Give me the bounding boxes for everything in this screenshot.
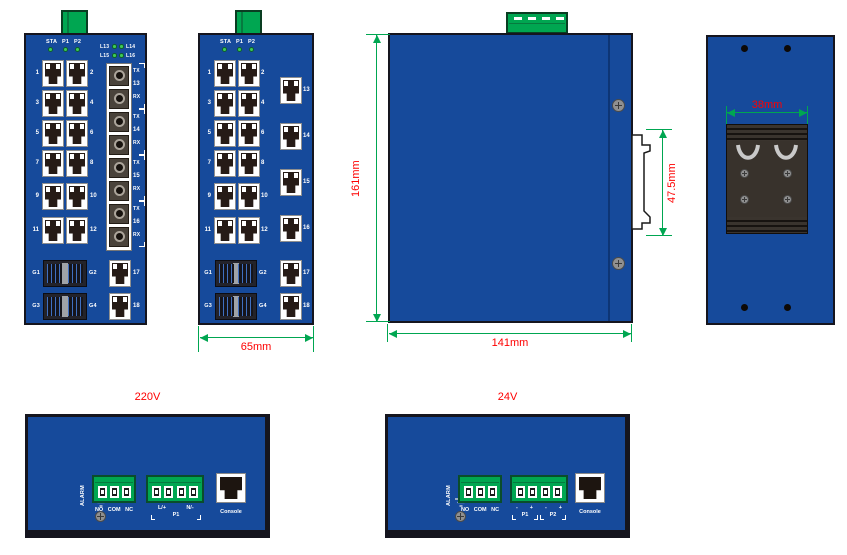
clip-screw: [783, 195, 792, 204]
rj45-jack: [45, 153, 61, 174]
rj45-jack: [241, 153, 257, 174]
rj45-port: [280, 169, 302, 196]
alarm-relay-terminal: [458, 475, 502, 503]
rj45-jack: [283, 263, 299, 284]
rj45-jack: [69, 220, 85, 241]
sfp-label: G3: [201, 303, 212, 309]
fiber-sc-connector: [109, 66, 129, 86]
screw-hole: [741, 304, 748, 311]
extension-line: [387, 324, 388, 342]
terminal-cell: [98, 486, 107, 498]
rj45-jack: [241, 123, 257, 144]
status-led-label: P2: [248, 39, 255, 45]
link-led-label: L13: [100, 44, 111, 50]
rj45-port: [42, 90, 64, 117]
port-number-label: 17: [133, 270, 143, 277]
rj45-port: [42, 217, 64, 244]
fiber-tx-label: TX: [133, 114, 144, 120]
fiber-port-label-group: TX14RX: [133, 109, 145, 155]
clip-screw: [783, 169, 792, 178]
fiber-port-label-group: TX15RX: [133, 155, 145, 201]
rj45-port: [238, 90, 260, 117]
power-group-bracket: P1: [512, 512, 538, 520]
rj45-port: [238, 60, 260, 87]
rj45-port: [109, 260, 131, 287]
rj45-jack: [283, 172, 299, 193]
sfp-label: G3: [28, 303, 40, 309]
polarity-sign: -: [516, 505, 518, 511]
rj45-port: [280, 123, 302, 150]
sfp-slot: [47, 297, 62, 316]
extension-line: [631, 324, 632, 342]
console-label: Console: [200, 509, 262, 516]
rj45-jack: [69, 123, 85, 144]
terminal-cell: [528, 486, 537, 498]
port-number-label: 6: [90, 130, 102, 137]
fiber-rx-label: RX: [133, 186, 144, 192]
port-number-label: 7: [27, 160, 39, 167]
status-led: [237, 47, 242, 52]
relay-pin-labels: NO COM NC: [446, 507, 514, 514]
power-input-terminal: [146, 475, 204, 503]
rj45-jack: [217, 220, 233, 241]
port-number-label: 3: [27, 100, 39, 107]
port-number-label: 5: [200, 130, 211, 137]
top-power-connector-side: [506, 12, 568, 34]
terminal-cell: [488, 486, 497, 498]
bottom-panel-220v: ALARM NO COM NC L/+ N/- P1 Console: [25, 414, 270, 538]
rj45-jack: [283, 296, 299, 317]
sfp-label: G1: [201, 270, 212, 276]
spring-clip: [773, 143, 799, 167]
fiber-port-label-group: TX16RX: [133, 201, 145, 247]
sfp-slot: [68, 297, 83, 316]
rj45-jack: [283, 126, 299, 147]
rail-dimension-label: 38mm: [726, 99, 808, 111]
rj45-jack: [45, 186, 61, 207]
fiber-tx-label: TX: [133, 68, 144, 74]
rj45-port: [214, 183, 236, 210]
rj45-jack: [217, 93, 233, 114]
rj45-port: [66, 120, 88, 147]
port-number-label: 16: [303, 225, 312, 232]
sfp-cage: [215, 260, 257, 287]
port-number-label: 11: [27, 227, 39, 234]
terminal-cell: [110, 486, 119, 498]
link-led: [119, 53, 124, 58]
fiber-sc-connector: [109, 158, 129, 178]
polarity-sign: -: [545, 505, 547, 511]
port-number-label: 12: [90, 227, 102, 234]
rj45-port: [214, 90, 236, 117]
sfp-slot: [238, 297, 253, 316]
rj45-jack: [241, 186, 257, 207]
fiber-tx-label: TX: [133, 160, 144, 166]
depth-dimension-arrow: [389, 333, 631, 334]
link-led-label: L16: [126, 53, 137, 59]
port-number-label: 2: [261, 70, 272, 77]
din-rail-mount-block: [726, 124, 808, 234]
console-jack: [579, 477, 601, 499]
fiber-port-label-group: TX13RX: [133, 63, 145, 109]
terminal-cell: [122, 486, 131, 498]
rj45-port: [280, 293, 302, 320]
port-number-label: 7: [200, 160, 211, 167]
polarity-sign: +: [530, 505, 533, 511]
sfp-slot: [219, 297, 234, 316]
terminal-cell: [516, 486, 525, 498]
link-led-label: L14: [126, 44, 137, 50]
sfp-slot: [219, 264, 234, 283]
clip-dimension-arrow: [662, 130, 663, 236]
fiber-sc-connector: [109, 227, 129, 247]
rj45-jack: [45, 220, 61, 241]
width-dimension-label: 65mm: [198, 341, 314, 353]
fiber-tx-label: TX: [133, 206, 144, 212]
power-group-bracket: P1: [151, 512, 201, 520]
port-number-label: 1: [200, 70, 211, 77]
fiber-port-number: 15: [133, 173, 144, 180]
rj45-jack: [241, 220, 257, 241]
switch-dimension-diagram: { "front_fiber": { "status_leds": ["STA"…: [0, 0, 847, 555]
rj45-port: [66, 217, 88, 244]
rj45-port: [238, 120, 260, 147]
alarm-label: ALARM: [80, 474, 86, 506]
rj45-jack: [283, 80, 299, 101]
port-number-label: 10: [261, 193, 272, 200]
link-led: [112, 44, 117, 49]
status-led-label: P1: [236, 39, 243, 45]
link-led: [112, 53, 117, 58]
spring-clip: [735, 143, 761, 167]
switch-front-panel-copper: STAP1P2123456789101112131415161718G1G2G3…: [198, 33, 314, 325]
height-dimension-arrow: [376, 35, 377, 322]
rj45-port: [66, 150, 88, 177]
rj45-jack: [241, 93, 257, 114]
rj45-port: [42, 183, 64, 210]
console-jack: [220, 477, 242, 499]
port-number-label: 10: [90, 193, 102, 200]
rj45-port: [66, 60, 88, 87]
screw-hole: [784, 45, 791, 52]
front-view-fiber-model: STAP1P2L13L14L15L16123456789101112TX13RX…: [24, 10, 154, 330]
bottom-panel-24v: ALARM NO COM NC - + - + P1 P2 Console: [385, 414, 630, 538]
fiber-port-number: 13: [133, 81, 144, 88]
rj45-jack: [217, 186, 233, 207]
terminal-cell: [476, 486, 485, 498]
rj45-jack: [241, 63, 257, 84]
mounting-screw: [612, 99, 625, 112]
switch-back-panel: [706, 35, 835, 325]
rj45-jack: [217, 153, 233, 174]
top-power-connector: [61, 10, 88, 35]
status-led-label: STA: [46, 39, 57, 45]
sfp-cage: [215, 293, 257, 320]
console-port: [216, 473, 246, 503]
power-input-terminal: [510, 475, 568, 503]
rj45-jack: [45, 123, 61, 144]
port-number-label: 15: [303, 179, 312, 186]
top-power-connector: [235, 10, 262, 35]
fiber-rx-bracket: [139, 242, 145, 247]
rj45-port: [214, 120, 236, 147]
terminal-cell: [553, 486, 562, 498]
status-led: [48, 47, 53, 52]
sfp-label: G2: [259, 270, 271, 276]
rail-dimension-arrow: [727, 112, 807, 113]
screw-hole: [784, 304, 791, 311]
sfp-label: G4: [259, 303, 271, 309]
port-number-label: 2: [90, 70, 102, 77]
port-number-label: 18: [303, 303, 312, 310]
link-led-label: L15: [100, 53, 111, 59]
rj45-jack: [112, 296, 128, 317]
sfp-label: G2: [89, 270, 102, 276]
port-number-label: 8: [90, 160, 102, 167]
port-number-label: 3: [200, 100, 211, 107]
rj45-port: [109, 293, 131, 320]
panel-seam-line: [608, 35, 610, 321]
fiber-sc-connector: [109, 135, 129, 155]
port-number-label: 4: [261, 100, 272, 107]
sfp-cage: [43, 260, 87, 287]
rj45-port: [66, 183, 88, 210]
fiber-sc-connector: [109, 181, 129, 201]
rj45-port: [42, 120, 64, 147]
port-number-label: 1: [27, 70, 39, 77]
status-led: [222, 47, 227, 52]
sfp-slot: [238, 264, 253, 283]
rj45-port: [238, 183, 260, 210]
clip-screw: [740, 169, 749, 178]
rj45-jack: [217, 63, 233, 84]
variant-title-24v: 24V: [385, 391, 630, 403]
sfp-slot: [68, 264, 83, 283]
port-number-label: 18: [133, 303, 143, 310]
port-number-label: 9: [200, 193, 211, 200]
terminal-cell: [189, 486, 198, 498]
width-dimension-arrow: [200, 337, 313, 338]
screw-hole: [741, 45, 748, 52]
status-led: [63, 47, 68, 52]
status-led-label: STA: [220, 39, 231, 45]
rj45-jack: [112, 263, 128, 284]
rj45-port: [238, 217, 260, 244]
terminal-cell: [541, 486, 550, 498]
rj45-jack: [69, 153, 85, 174]
status-led-label: P1: [62, 39, 69, 45]
rj45-port: [42, 150, 64, 177]
status-led: [75, 47, 80, 52]
fiber-rx-label: RX: [133, 140, 144, 146]
sfp-label: G4: [89, 303, 102, 309]
din-mount-groove-bottom: [727, 217, 807, 233]
rj45-jack: [45, 93, 61, 114]
sfp-cage: [43, 293, 87, 320]
rj45-port: [280, 77, 302, 104]
rj45-jack: [45, 63, 61, 84]
rj45-port: [42, 60, 64, 87]
terminal-cell: [152, 486, 161, 498]
fiber-sc-connector: [109, 112, 129, 132]
variant-title-220v: 220V: [25, 391, 270, 403]
relay-pin-labels: NO COM NC: [80, 507, 148, 514]
terminal-cell: [464, 486, 473, 498]
rj45-port: [214, 60, 236, 87]
port-number-label: 11: [200, 227, 211, 234]
console-port: [575, 473, 605, 503]
fiber-rx-label: RX: [133, 94, 144, 100]
console-label: Console: [559, 509, 621, 516]
fiber-rx-label: RX: [133, 232, 144, 238]
port-number-label: 4: [90, 100, 102, 107]
switch-front-panel-fiber: STAP1P2L13L14L15L16123456789101112TX13RX…: [24, 33, 147, 325]
mounting-screw: [612, 257, 625, 270]
rj45-jack: [69, 63, 85, 84]
fiber-port-bezel: [106, 63, 132, 251]
port-number-label: 12: [261, 227, 272, 234]
link-led: [119, 44, 124, 49]
port-number-label: 13: [303, 87, 312, 94]
status-led-label: P2: [74, 39, 81, 45]
switch-side-panel: [388, 33, 633, 323]
din-rail-clip-profile: [629, 126, 653, 238]
line-label: L/+: [152, 505, 172, 512]
fiber-port-number: 16: [133, 219, 144, 226]
terminal-cell: [177, 486, 186, 498]
rj45-port: [214, 217, 236, 244]
rj45-jack: [283, 218, 299, 239]
din-mount-groove-top: [727, 125, 807, 141]
port-number-label: 8: [261, 160, 272, 167]
depth-dimension-label: 141mm: [389, 337, 631, 349]
status-led: [249, 47, 254, 52]
fiber-port-number: 14: [133, 127, 144, 134]
port-number-label: 9: [27, 193, 39, 200]
rj45-port: [214, 150, 236, 177]
sfp-slot: [47, 264, 62, 283]
fiber-sc-connector: [109, 89, 129, 109]
rj45-port: [238, 150, 260, 177]
fiber-sc-connector: [109, 204, 129, 224]
height-dimension-label: 161mm: [350, 148, 362, 210]
sfp-label: G1: [28, 270, 40, 276]
rj45-jack: [69, 186, 85, 207]
rj45-jack: [69, 93, 85, 114]
neutral-label: N/-: [180, 505, 200, 512]
rj45-port: [280, 260, 302, 287]
rj45-port: [280, 215, 302, 242]
port-number-label: 5: [27, 130, 39, 137]
port-number-label: 14: [303, 133, 312, 140]
port-number-label: 17: [303, 270, 312, 277]
alarm-label: ALARM: [446, 474, 452, 506]
clip-screw: [740, 195, 749, 204]
rj45-jack: [217, 123, 233, 144]
clip-dimension-label: 47.5mm: [666, 152, 678, 214]
front-view-copper-model: STAP1P2123456789101112131415161718G1G2G3…: [198, 10, 328, 330]
rj45-port: [66, 90, 88, 117]
alarm-relay-terminal: [92, 475, 136, 503]
extension-line: [807, 106, 808, 124]
port-number-label: 6: [261, 130, 272, 137]
terminal-cell: [164, 486, 173, 498]
